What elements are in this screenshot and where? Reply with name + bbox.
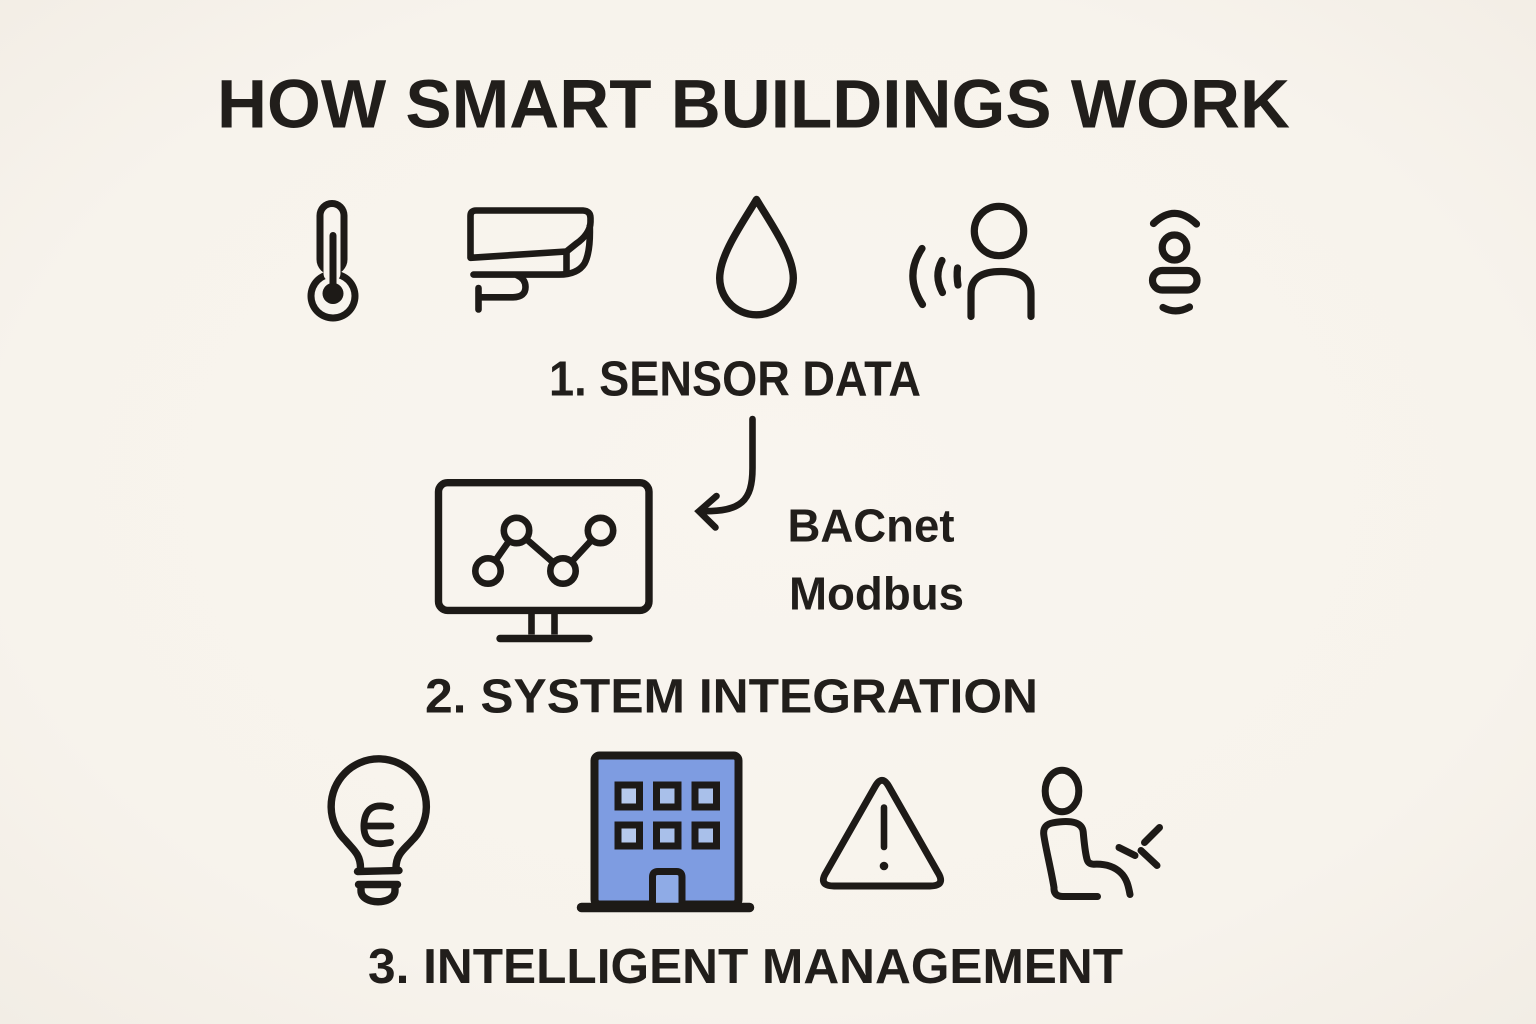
svg-text:BACnet: BACnet [788, 499, 955, 551]
svg-text:1. SENSOR DATA: 1. SENSOR DATA [549, 352, 921, 406]
svg-text:2. SYSTEM INTEGRATION: 2. SYSTEM INTEGRATION [425, 669, 1038, 723]
svg-text:3. INTELLIGENT MANAGEMENT: 3. INTELLIGENT MANAGEMENT [368, 939, 1123, 994]
svg-text:HOW SMART BUILDINGS WORK: HOW SMART BUILDINGS WORK [217, 66, 1290, 143]
svg-text:Modbus: Modbus [789, 567, 964, 619]
